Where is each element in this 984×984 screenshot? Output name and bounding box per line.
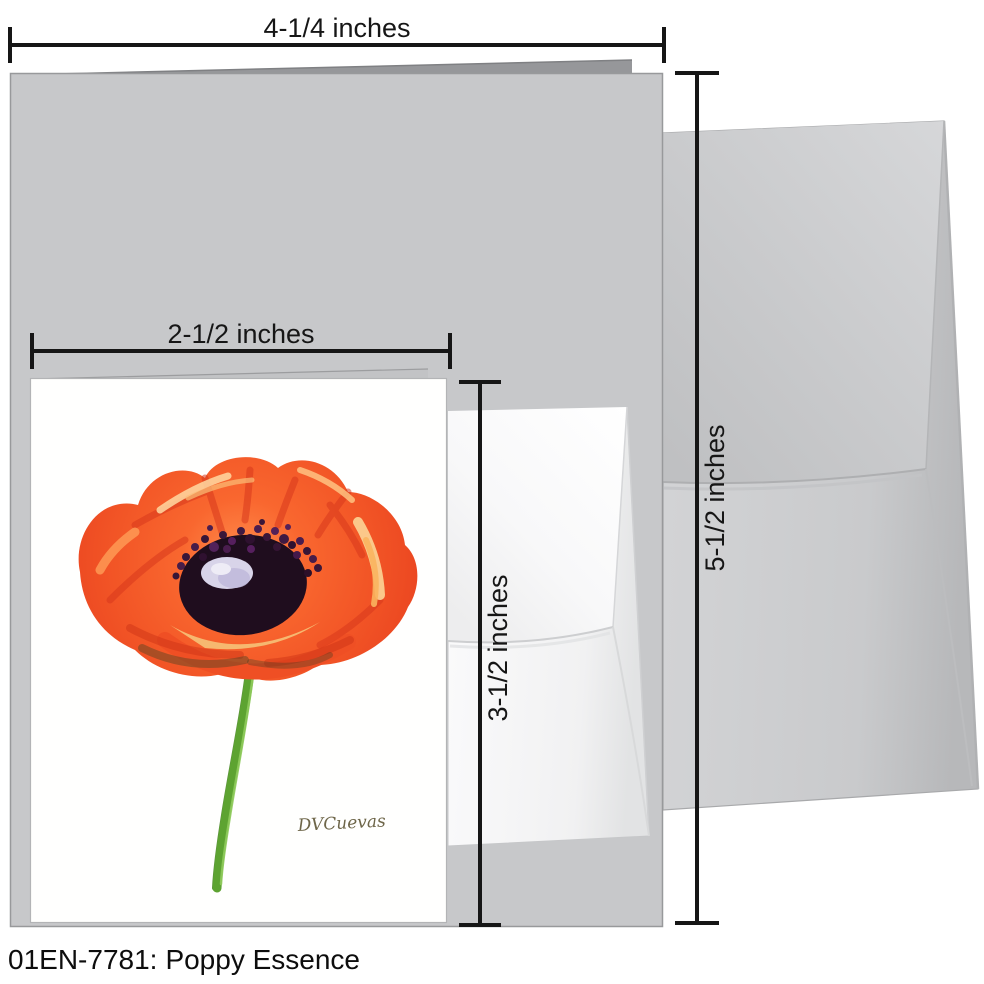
product-title: Poppy Essence	[165, 944, 360, 975]
dimension-small-width-label: 2-1/2 inches	[167, 319, 314, 349]
product-caption: 01EN-7781:Poppy Essence	[8, 944, 360, 975]
dimension-large-width: 4-1/4 inches	[10, 13, 664, 63]
dimension-large-width-label: 4-1/4 inches	[263, 13, 410, 43]
product-sku: 01EN-7781:	[8, 944, 157, 975]
product-mockup-canvas: DVCuevas 4-1/4 inches 5-1/2 inches 2-1/2…	[0, 0, 984, 984]
dimension-large-height-label: 5-1/2 inches	[700, 424, 730, 571]
poppy-pistil-highlight-core	[211, 563, 231, 575]
dimension-small-height-label: 3-1/2 inches	[483, 574, 513, 721]
scene-svg: DVCuevas 4-1/4 inches 5-1/2 inches 2-1/2…	[0, 0, 984, 984]
small-envelope-flap	[448, 407, 627, 642]
small-card: DVCuevas	[31, 369, 447, 923]
